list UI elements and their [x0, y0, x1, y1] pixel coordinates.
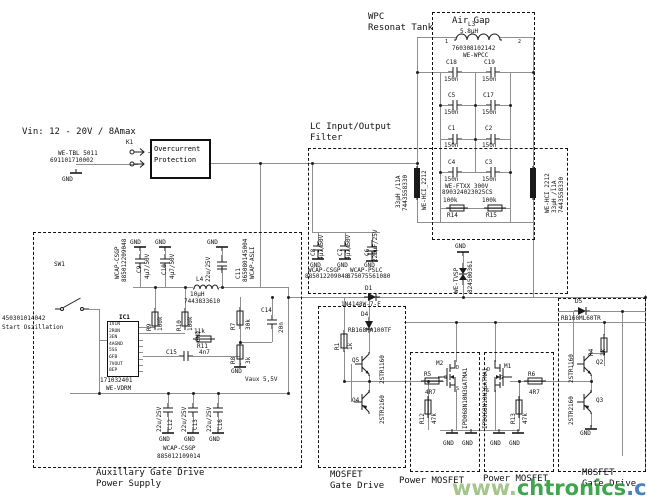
gnd-q3-label: GND — [580, 431, 591, 437]
watermark: www.chtronics.com — [452, 476, 647, 499]
r9-ref: R9 — [147, 324, 153, 331]
aux-out-series: WCAP-CSGP — [163, 446, 196, 452]
gnd-r8-label: GND — [231, 369, 242, 375]
ic1-pin-fb: 6FB — [108, 355, 138, 362]
gnd-m2b — [464, 429, 478, 437]
c2-ref: C2 — [485, 126, 492, 132]
q5-ref: Q5 — [352, 358, 359, 364]
c1-val: 150n — [444, 143, 458, 149]
c6-val: 220µF/25V — [373, 229, 379, 262]
ic1-body: 1VIN2RON3EN4AGND5SS6FB7VOUT8EP — [107, 321, 139, 377]
gnd-c13-label: GND — [184, 437, 195, 443]
d1-ref: D1 — [365, 286, 372, 292]
q4-part: 2STR2160 — [380, 395, 386, 424]
k1-part: 691101710002 — [50, 158, 93, 164]
r7-ref: R7 — [231, 323, 237, 330]
c13-cap — [186, 403, 200, 417]
k1-ref: K1 — [126, 140, 133, 146]
sw1-note: Start Oszillation — [2, 325, 63, 331]
l4-ref: L4 — [196, 277, 203, 283]
wpc-tank-label-line2: Resonat Tank — [368, 23, 433, 34]
c14-cap — [265, 315, 279, 329]
c11-series: WCAP-ASLI — [250, 246, 256, 279]
c3-ref: C3 — [485, 160, 492, 166]
c18-ref: C18 — [446, 60, 457, 66]
gnd-c16-label: GND — [209, 437, 220, 443]
c7-val: 4µ7/50V — [346, 235, 352, 260]
c7-ref: C7 — [338, 249, 344, 256]
ic1-pin-vin: 1VIN — [108, 322, 138, 329]
d4-part: RB168MA100TF — [348, 328, 391, 334]
q3-ref: Q3 — [596, 398, 603, 404]
junction-dot — [462, 296, 465, 299]
c9-val: 4µ7/50V — [145, 254, 151, 279]
r4-val: 1k — [601, 349, 607, 356]
junction-dot — [259, 162, 262, 165]
l4-part: 7443833610 — [184, 299, 220, 305]
l3-pin1: 1 — [445, 40, 448, 45]
junction-dot — [494, 321, 497, 324]
gate-drive-right-box — [558, 298, 646, 472]
c8-ref: C8 — [311, 249, 317, 256]
lc-filter-label: LC Input/OutputFilter — [310, 122, 391, 144]
sw1-switch — [55, 293, 89, 315]
m2-d: D — [456, 366, 459, 371]
r1-val: 1k — [348, 343, 354, 350]
r1-ref: R1 — [335, 343, 341, 350]
film-part: 890324023025CS — [442, 190, 493, 196]
tvs-series: WE-TVSP — [454, 268, 460, 293]
q2-part: 2STR1160 — [569, 354, 575, 383]
gate-drive-left-label-line2: Gate Drive — [330, 481, 384, 492]
l1-part: 7443558330 — [403, 175, 409, 211]
gnd-m1a-label: GND — [490, 441, 501, 447]
r14-ref: R14 — [447, 213, 458, 219]
r13-val: 47k — [523, 413, 529, 424]
watermark-name: chtronics — [517, 476, 626, 499]
c10-val: 4µ7/50V — [170, 254, 176, 279]
q2-ref: Q2 — [596, 360, 603, 366]
l3-value: 5.8µH — [460, 29, 478, 35]
c19-val: 150n — [482, 77, 496, 83]
l2-ind — [529, 166, 537, 200]
lc-bulk-part: 875075561080 — [347, 274, 390, 280]
aux-supply-label-line1: Auxillary Gate Drive — [96, 468, 204, 479]
l4-coil — [193, 283, 219, 291]
m1-part: IPD068N10N3GATMA1 — [483, 368, 489, 429]
tvs-part: 824500361 — [468, 260, 474, 293]
air-gap-label: Air Gap — [452, 16, 490, 27]
q3-bjt — [577, 390, 595, 414]
gnd-m2a-label: GND — [443, 441, 454, 447]
gnd-c12-label: GND — [159, 437, 170, 443]
watermark-com: .com — [626, 476, 647, 499]
ic1-series: WE-VDRM — [106, 386, 131, 392]
c12-cap — [161, 403, 175, 417]
c4-ref: C4 — [448, 160, 455, 166]
m1-g: G — [500, 376, 503, 381]
sw1-ref: SW1 — [54, 262, 65, 268]
r15-ref: R15 — [486, 213, 497, 219]
aux-supply-label: Auxillary Gate DrivePower Supply — [96, 468, 204, 490]
gnd-c11-label: GND — [207, 240, 218, 246]
d1-part: 1N4148W-7-F — [341, 302, 381, 308]
r8-val: 3k — [246, 357, 252, 364]
ic1-part: 171032401 — [100, 378, 133, 384]
c11-val: 22u/25V — [206, 257, 212, 282]
r5-val: 4R7 — [425, 390, 436, 396]
sw1-part: 450301014042 — [2, 316, 45, 322]
c15-val: 4n7 — [199, 350, 210, 356]
c18-val: 150n — [444, 77, 458, 83]
lc-cap-part: 885012209048 — [305, 274, 348, 280]
wpc-tank-label-line1: WPC — [368, 12, 433, 23]
d5-ref: D5 — [575, 299, 582, 305]
c17-ref: C17 — [483, 93, 494, 99]
gnd-ic-label: GND — [196, 331, 202, 342]
wpc-tank-label: WPCResonat Tank — [368, 12, 433, 34]
r4-ref: R4 — [589, 349, 595, 356]
c16-val: 22u/25V — [207, 407, 213, 432]
overcurrent-protection-box: OvercurrentProtection — [150, 139, 211, 179]
m2-g: G — [444, 376, 447, 381]
gate-drive-left-label: MOSFETGate Drive — [330, 470, 384, 492]
c6-ref: C6 — [365, 249, 371, 256]
gnd-tvs-label: GND — [455, 244, 466, 250]
vaux-label: Vaux 5,5V — [245, 377, 278, 383]
junction-dot — [416, 71, 419, 74]
ic1-ref: IC1 — [119, 314, 139, 321]
c10-ref: C10 — [162, 264, 168, 275]
m2-part: IPD068N10N3GATMA1 — [463, 368, 469, 429]
c15-ref: C15 — [166, 350, 177, 356]
overcurrent-line2: Protection — [154, 155, 207, 166]
r6-ref: R6 — [528, 372, 535, 378]
aux-in-part: 885012209048 — [122, 239, 128, 282]
c16-cap — [211, 403, 225, 417]
junction-dot — [455, 321, 458, 324]
aux-out-part: 885012109014 — [157, 454, 200, 460]
ic1-pin-ep: 8EP — [108, 368, 138, 375]
c19-ref: C19 — [484, 60, 495, 66]
c14-ref: C14 — [261, 308, 272, 314]
d4-ref: D4 — [361, 312, 368, 318]
r10-ref: R10 — [177, 320, 183, 331]
r15-val: 100k — [482, 198, 496, 204]
schematic-canvas: Vin: 12 - 20V / 8Amax WPCResonat Tank Ai… — [0, 0, 647, 499]
c12-val: 22u/25V — [157, 407, 163, 432]
r14-val: 100k — [443, 198, 457, 204]
gnd-m1b — [511, 429, 525, 437]
watermark-www: www. — [452, 476, 517, 499]
c2-val: 150n — [482, 143, 496, 149]
c15-cap — [179, 349, 193, 363]
r8-ref: R8 — [231, 357, 237, 364]
q3-part: 2STR2160 — [569, 396, 575, 425]
l2-part: 7443558330 — [559, 177, 565, 213]
gnd-c10-label: GND — [155, 240, 166, 246]
ic1-pin-en: 3EN — [108, 335, 138, 342]
l3-pin2: 2 — [518, 40, 521, 45]
q5-bjt — [355, 352, 373, 376]
c12-ref: C12 — [168, 419, 174, 430]
q5-part: 2STR1160 — [380, 355, 386, 384]
c16-ref: C16 — [218, 419, 224, 430]
c5-ref: C5 — [448, 93, 455, 99]
c13-val: 22u/25V — [182, 407, 188, 432]
c8-val: 4µ7/50V — [319, 235, 325, 260]
lc-filter-label-line1: LC Input/Output — [310, 122, 391, 133]
c1-ref: C1 — [448, 126, 455, 132]
k1-conn — [127, 143, 147, 173]
m2-s: S — [456, 387, 459, 392]
l1-ind — [413, 166, 421, 200]
m2-ref: M2 — [436, 361, 443, 367]
c5-val: 150n — [444, 110, 458, 116]
gnd-m1b-label: GND — [509, 441, 520, 447]
c17-val: 150n — [482, 110, 496, 116]
q4-ref: Q4 — [352, 398, 359, 404]
m1-ref: M1 — [504, 364, 511, 370]
gnd-m2a — [445, 429, 459, 437]
r9-val: 100k — [158, 317, 164, 331]
wire-segment — [417, 37, 418, 163]
overcurrent-line1: Overcurrent — [154, 144, 207, 155]
lc-filter-label-line2: Filter — [310, 133, 391, 144]
ic1-block: IC1 1VIN2RON3EN4AGND5SS6FB7VOUT8EP — [107, 314, 139, 377]
r5-ref: R5 — [424, 372, 431, 378]
gate-drive-left-label-line1: MOSFET — [330, 470, 384, 481]
c13-ref: C13 — [193, 419, 199, 430]
r7-val: 30k — [246, 319, 252, 330]
r12-ref: R12 — [420, 413, 426, 424]
gnd-m2b-label: GND — [462, 441, 473, 447]
d5-part: RB160ML60TR — [561, 316, 601, 322]
c11-cap — [215, 255, 229, 273]
r13-ref: R13 — [511, 413, 517, 424]
r6-val: 4R7 — [529, 390, 540, 396]
l1-series: WE-HCI_2212 — [422, 170, 428, 210]
aux-supply-label-line2: Power Supply — [96, 479, 204, 490]
gnd-c9-label: GND — [130, 240, 141, 246]
c14-val: 20n — [279, 322, 285, 333]
ic1-pin-ss: 5SS — [108, 348, 138, 355]
gnd-k1-label: GND — [62, 177, 73, 183]
gnd-m1a — [492, 429, 506, 437]
r12-val: 47k — [432, 413, 438, 424]
c9-ref: C9 — [137, 266, 143, 273]
vin-spec-label: Vin: 12 - 20V / 8Amax — [22, 127, 136, 138]
